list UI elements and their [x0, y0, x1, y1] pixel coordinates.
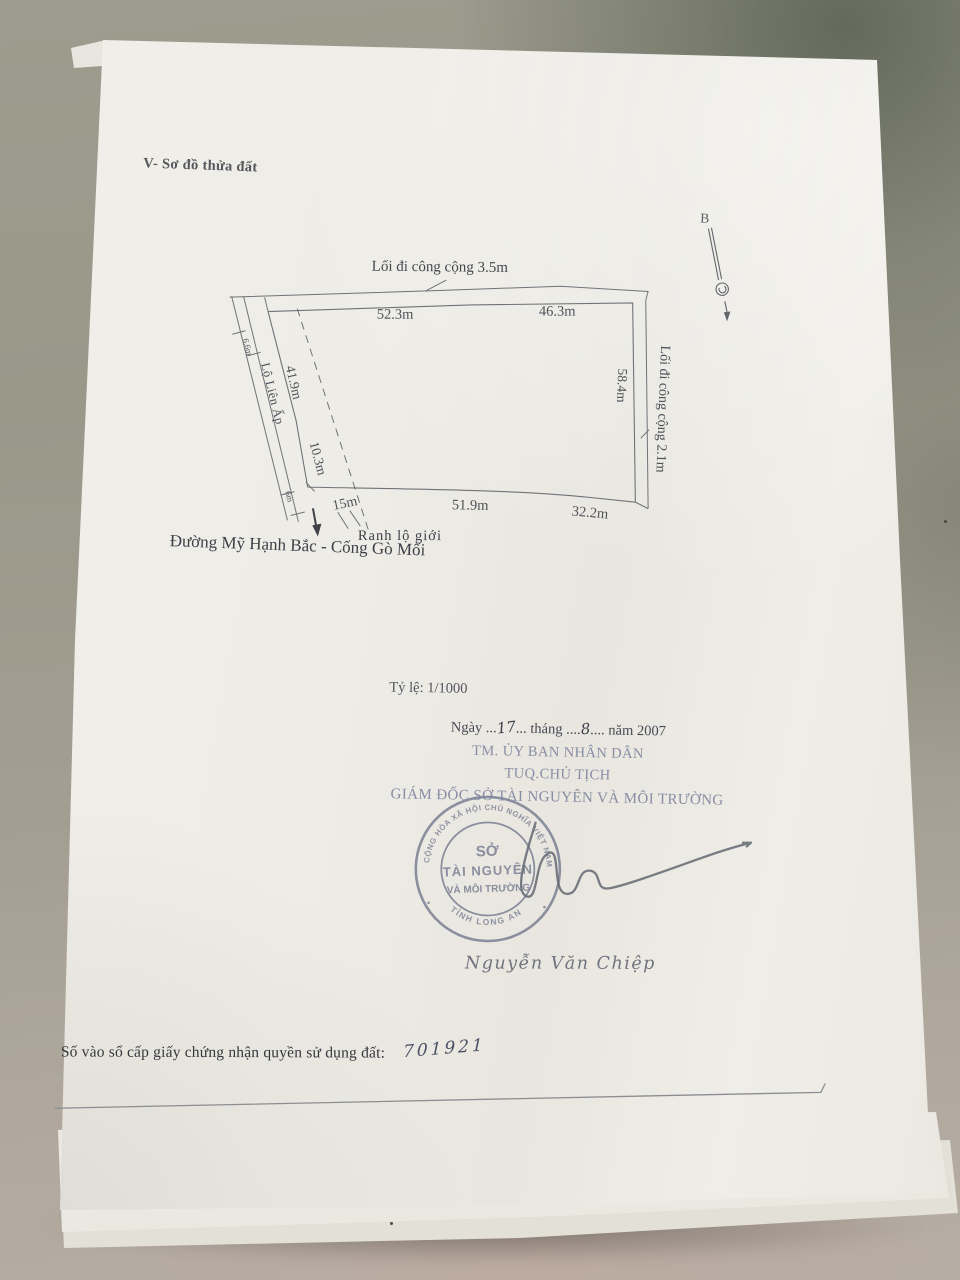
left-road-strip [223, 296, 306, 522]
date-suffix: .... năm 2007 [590, 722, 666, 739]
top-road-label: Lối đi công cộng 3.5m [372, 259, 508, 277]
compass-tail [724, 301, 727, 313]
measure-right: 58.4m [613, 368, 630, 403]
measure-top-right: 46.3m [539, 304, 576, 321]
strip-arrow-head [312, 523, 321, 536]
date-day-handwritten: 17 [495, 715, 517, 740]
compass-tail-head [724, 311, 731, 321]
stamp-center-line3: VÀ MÔI TRƯỜNG [447, 881, 531, 897]
compass-label: B [700, 210, 710, 226]
stamp-dot-left [427, 901, 430, 904]
date-mid: ... tháng .... [516, 721, 581, 738]
measure-top-left: 52.3m [377, 307, 414, 324]
stamp-center-line1: SỞ [476, 842, 500, 861]
measure-bottom-right: 32.2m [571, 503, 609, 523]
stamp-dot-right [543, 906, 546, 909]
measure-bottom-mid: 51.9m [452, 497, 489, 515]
signing-block: Ngày ...17... tháng ....8.... năm 2007 T… [390, 714, 725, 812]
date-month-handwritten: 8 [580, 718, 591, 741]
north-arrow [705, 228, 733, 322]
strip-arrow-line [312, 508, 317, 526]
signer-name: Nguyễn Văn Chiệp [465, 954, 656, 974]
scale-label: Tỷ lệ: 1/1000 [389, 679, 467, 697]
setback-dashed-line [289, 309, 376, 530]
photo-background: CỘNG HÒA XÃ HỘI CHỦ NGHĨA VIỆT NAM TỈNH … [0, 0, 960, 1280]
stamp-center-line2: TÀI NGUYÊN [443, 861, 534, 879]
registry-row: Số vào sổ cấp giấy chứng nhận quyền sử d… [61, 1041, 486, 1062]
document-content: CỘNG HÒA XÃ HỘI CHỦ NGHĨA VIỆT NAM TỈNH … [51, 38, 883, 1236]
surface-speck [390, 1222, 393, 1225]
compass-inner-curl [719, 286, 726, 293]
top-road-line [230, 274, 649, 312]
compass-needle-lines [707, 228, 724, 281]
registry-label: Số vào sổ cấp giấy chứng nhận quyền sử d… [61, 1043, 385, 1061]
date-prefix: Ngày ... [451, 719, 497, 736]
page-rule-line [55, 1055, 825, 1136]
surface-speck [944, 520, 947, 523]
